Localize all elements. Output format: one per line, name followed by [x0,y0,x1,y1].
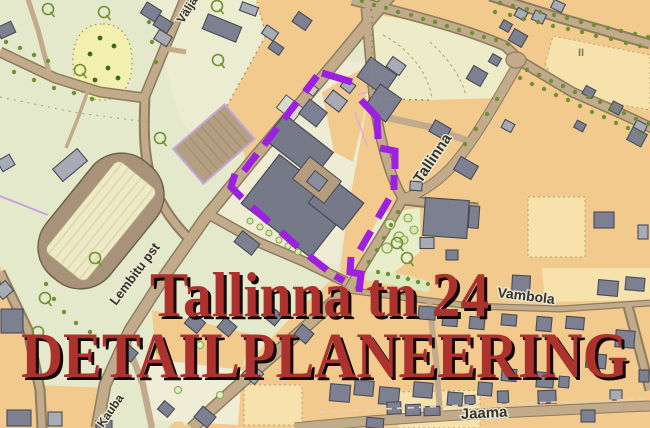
svg-text:DETAILPLANEERING: DETAILPLANEERING [21,320,628,392]
svg-text:Jaama: Jaama [460,404,508,423]
svg-text:II: II [578,47,584,59]
